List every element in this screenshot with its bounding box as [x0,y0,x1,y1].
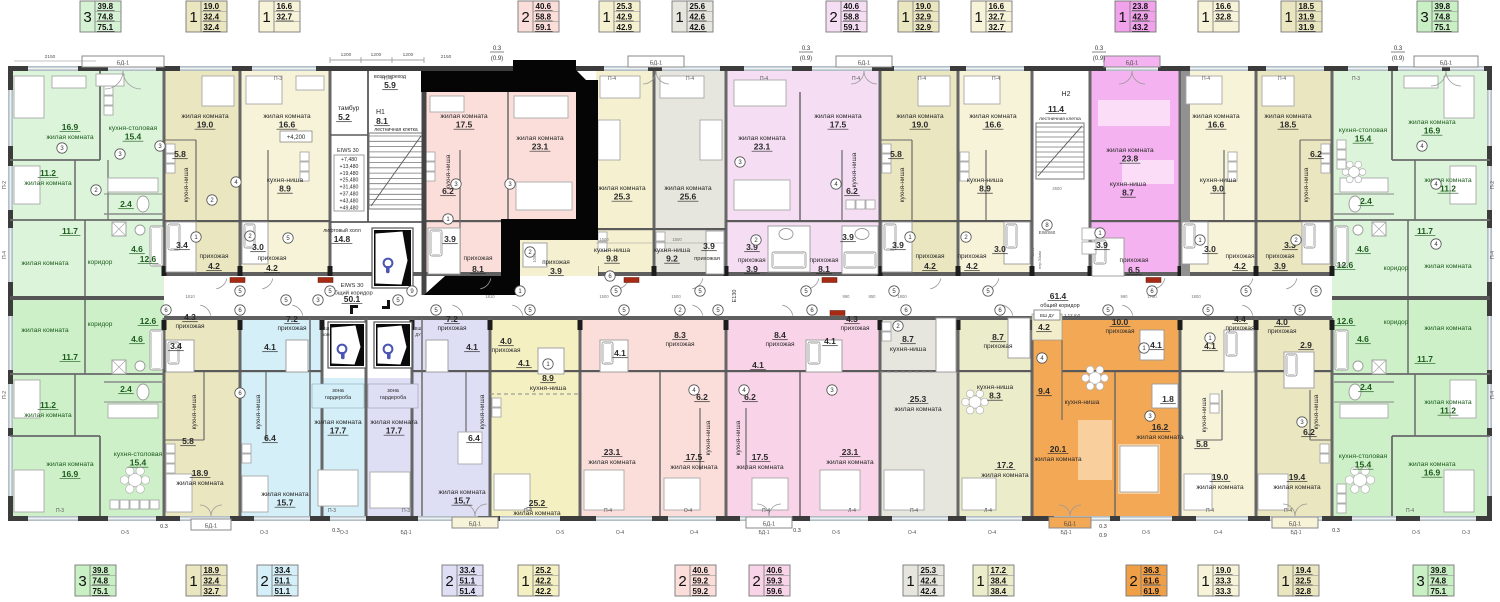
svg-text:15.4: 15.4 [125,132,142,142]
svg-text:П-4: П-4 [1490,251,1496,259]
svg-text:лифтовый холл: лифтовый холл [323,227,360,234]
svg-text:общий коридор: общий коридор [1040,302,1079,309]
svg-text:8.1: 8.1 [472,264,484,274]
svg-text:42.9: 42.9 [1133,13,1149,22]
svg-text:32.8: 32.8 [1216,13,1232,22]
svg-text:прихожая: прихожая [176,323,205,330]
svg-text:25.2: 25.2 [536,566,552,575]
svg-text:40.6: 40.6 [693,566,709,575]
svg-text:58.8: 58.8 [844,13,860,22]
svg-text:17.5: 17.5 [456,120,473,130]
svg-text:11.7: 11.7 [1417,354,1433,364]
svg-text:6.4: 6.4 [264,433,276,443]
svg-text:EIWS60: EIWS60 [1039,230,1056,235]
svg-text:11.7: 11.7 [62,226,78,236]
svg-text:П-4: П-4 [1490,391,1496,399]
svg-text:БД-1: БД-1 [1064,522,1076,528]
svg-text:П-4: П-4 [604,508,612,514]
svg-text:+49,480: +49,480 [340,205,359,211]
svg-text:1: 1 [901,9,909,26]
svg-text:2: 2 [1129,573,1137,590]
svg-text:О-5: О-5 [1142,530,1151,536]
svg-text:10.0: 10.0 [1112,317,1129,327]
svg-text:1: 1 [1118,9,1126,26]
svg-text:33.3: 33.3 [1216,577,1232,586]
svg-text:3: 3 [83,9,91,26]
svg-text:прихожая: прихожая [1226,325,1255,332]
svg-text:4.0: 4.0 [1276,317,1288,327]
svg-text:18.9: 18.9 [204,566,220,575]
svg-text:П-4: П-4 [1278,76,1286,82]
svg-text:59.3: 59.3 [767,577,783,586]
svg-text:кухня-ниша: кухня-ниша [1303,167,1310,202]
svg-text:23.1: 23.1 [754,142,771,152]
svg-text:жилая комната: жилая комната [1196,484,1244,491]
svg-text:EIWS 30: EIWS 30 [337,148,359,154]
svg-text:0.3: 0.3 [1095,46,1104,52]
svg-text:2: 2 [829,9,837,26]
svg-text:39.8: 39.8 [98,2,114,11]
svg-text:16.6: 16.6 [277,2,293,11]
svg-text:74.8: 74.8 [1435,13,1451,22]
svg-text:прихожая: прихожая [492,347,521,354]
svg-text:19.0: 19.0 [1212,472,1229,482]
svg-text:7.2: 7.2 [446,314,458,324]
svg-text:прихожая: прихожая [694,256,720,262]
svg-text:3.9: 3.9 [1096,240,1108,250]
svg-text:П-3: П-3 [1352,76,1360,82]
svg-text:38.4: 38.4 [991,587,1007,596]
svg-text:3.0: 3.0 [1204,244,1216,254]
svg-text:8.1: 8.1 [818,264,830,274]
svg-text:жилая комната: жилая комната [1034,456,1082,463]
svg-text:3.9: 3.9 [703,241,715,251]
svg-text:14.8: 14.8 [334,234,351,244]
svg-text:П-4: П-4 [762,508,770,514]
svg-text:1800: 1800 [897,294,907,299]
svg-text:1: 1 [262,9,270,26]
svg-text:жилая комната: жилая комната [670,464,718,471]
svg-text:П-4: П-4 [384,76,392,82]
svg-text:1: 1 [1284,9,1292,26]
svg-text:17.5: 17.5 [752,452,769,462]
svg-text:прихожая: прихожая [438,325,467,332]
svg-text:6.2: 6.2 [846,186,858,196]
svg-text:О-5: О-5 [832,530,841,536]
svg-text:0.3: 0.3 [802,46,811,52]
svg-text:4.6: 4.6 [1357,244,1369,254]
svg-text:51.1: 51.1 [460,577,476,586]
svg-text:жилая комната: жилая комната [736,464,784,471]
svg-text:32.7: 32.7 [989,23,1005,32]
svg-text:кухня-ниша: кухня-ниша [1201,397,1208,432]
svg-text:17.5: 17.5 [830,120,847,130]
svg-text:1: 1 [189,9,197,26]
svg-text:16.2: 16.2 [1152,422,1169,432]
svg-text:П-2: П-2 [2,391,8,399]
svg-text:+43,480: +43,480 [340,198,359,204]
svg-text:+37,480: +37,480 [340,192,359,198]
svg-text:850: 850 [869,294,877,299]
svg-text:0.3: 0.3 [493,46,502,52]
svg-text:75.1: 75.1 [98,23,114,32]
svg-text:4.1: 4.1 [466,342,478,352]
svg-text:15.4: 15.4 [1355,134,1372,144]
svg-text:11.7: 11.7 [62,352,78,362]
svg-text:7.2: 7.2 [286,314,298,324]
svg-text:1800: 1800 [1191,294,1201,299]
svg-text:1500: 1500 [1030,247,1035,257]
svg-text:25.3: 25.3 [910,394,927,404]
svg-text:4.2: 4.2 [924,261,936,271]
svg-text:ВШ: ВШ [323,326,330,331]
svg-text:4.1: 4.1 [1150,340,1162,350]
svg-text:9.2: 9.2 [666,254,678,264]
svg-text:990: 990 [843,294,851,299]
svg-text:1200: 1200 [371,52,382,58]
svg-text:кухня-ниша: кухня-ниша [899,167,906,202]
svg-text:11.2: 11.2 [40,168,56,178]
svg-text:+31,480: +31,480 [340,185,359,191]
svg-text:6.5: 6.5 [1128,265,1140,275]
svg-text:39.8: 39.8 [1435,2,1451,11]
svg-text:32.7: 32.7 [204,587,220,596]
svg-text:1: 1 [189,573,197,590]
svg-text:0.3: 0.3 [160,524,168,530]
svg-text:БД-1: БД-1 [469,522,481,528]
svg-text:9.4: 9.4 [1038,386,1050,396]
svg-text:кухня-ниша: кухня-ниша [530,385,567,392]
svg-text:1: 1 [974,9,982,26]
svg-text:61.9: 61.9 [1144,587,1160,596]
svg-text:17.7: 17.7 [330,426,347,436]
svg-text:1: 1 [602,9,610,26]
svg-text:1: 1 [1201,9,1209,26]
svg-text:2: 2 [521,9,529,26]
svg-text:74.8: 74.8 [93,577,109,586]
svg-text:23.8: 23.8 [1133,2,1149,11]
svg-text:жилая комната: жилая комната [1136,434,1184,441]
svg-text:ВШ: ВШ [415,326,422,331]
svg-text:33.3: 33.3 [1216,587,1232,596]
svg-text:2.4: 2.4 [1360,382,1372,392]
svg-text:кухня-ниша: кухня-ниша [1313,394,1320,429]
svg-text:19.0: 19.0 [1216,566,1232,575]
svg-text:9.8: 9.8 [606,254,618,264]
svg-text:25.6: 25.6 [690,2,706,11]
svg-text:59.1: 59.1 [536,23,552,32]
svg-text:жилая комната: жилая комната [1273,484,1321,491]
svg-text:П-3: П-3 [328,508,336,514]
svg-text:42.6: 42.6 [690,13,706,22]
svg-text:О-4: О-4 [908,530,917,536]
svg-text:4.2: 4.2 [266,263,278,273]
svg-text:жилая комната: жилая комната [24,180,72,187]
svg-text:жилая комната: жилая комната [21,260,69,267]
svg-text:42.2: 42.2 [536,587,552,596]
svg-text:23.1: 23.1 [842,447,859,457]
svg-text:23.1: 23.1 [532,142,549,152]
svg-text:+4,200: +4,200 [287,135,306,141]
svg-text:1750: 1750 [1147,294,1157,299]
svg-text:11.7: 11.7 [1417,226,1433,236]
svg-text:23.1: 23.1 [604,447,621,457]
svg-text:15.4: 15.4 [1355,460,1372,470]
svg-text:жилая комната: жилая комната [513,510,561,517]
svg-text:1200: 1200 [403,52,414,58]
svg-text:О-4: О-4 [1214,530,1223,536]
svg-text:32.4: 32.4 [204,23,220,32]
svg-text:прихожая: прихожая [738,257,766,264]
svg-text:П-4: П-4 [2,251,8,259]
svg-text:5.8: 5.8 [1196,439,1208,449]
svg-text:2150: 2150 [45,54,56,60]
svg-text:О-4: О-4 [988,530,997,536]
svg-text:+13,480: +13,480 [340,164,359,170]
svg-text:16.9: 16.9 [62,469,79,479]
svg-text:51.4: 51.4 [460,587,476,596]
svg-text:23.8: 23.8 [1122,154,1139,164]
svg-text:19.4: 19.4 [1289,472,1306,482]
svg-text:25.2: 25.2 [529,498,546,508]
svg-text:32.4: 32.4 [204,13,220,22]
svg-text:8.3: 8.3 [989,391,1001,401]
svg-text:4.2: 4.2 [1234,261,1246,271]
svg-text:2: 2 [752,573,760,590]
svg-text:16.9: 16.9 [1424,126,1441,136]
svg-text:П-2: П-2 [1490,181,1496,189]
svg-text:8.7: 8.7 [992,332,1004,342]
svg-text:42.9: 42.9 [617,13,633,22]
svg-text:жилая комната: жилая комната [176,480,224,487]
svg-text:32.4: 32.4 [204,577,220,586]
svg-text:П-4: П-4 [608,76,616,82]
svg-text:4.1: 4.1 [824,336,836,346]
svg-text:П-4: П-4 [1202,76,1210,82]
svg-text:2150: 2150 [441,54,452,60]
svg-text:жилая комната: жилая комната [21,327,69,334]
svg-text:58.8: 58.8 [536,13,552,22]
svg-text:25.6: 25.6 [680,192,697,202]
svg-text:74.8: 74.8 [1431,577,1447,586]
svg-text:1500: 1500 [599,237,609,242]
svg-text:51.1: 51.1 [275,577,291,586]
svg-text:прихожая: прихожая [810,257,839,264]
svg-text:ВШ ДУ: ВШ ДУ [1040,313,1054,318]
svg-text:51.1: 51.1 [275,587,291,596]
svg-text:8.4: 8.4 [774,330,786,340]
svg-text:БД-1: БД-1 [1290,530,1301,536]
svg-text:БД-1: БД-1 [117,61,129,67]
svg-text:коридор: коридор [1384,319,1409,326]
svg-text:1: 1 [1201,573,1209,590]
svg-text:1.12 m2: 1.12 m2 [1064,313,1081,318]
svg-text:П-3: П-3 [402,508,410,514]
svg-text:EIWS 30: EIWS 30 [341,283,364,289]
svg-text:6.2: 6.2 [1310,149,1322,159]
svg-text:лестничная клетка: лестничная клетка [374,127,418,133]
svg-text:2: 2 [678,573,686,590]
svg-text:3.0: 3.0 [252,242,264,252]
svg-text:39.8: 39.8 [93,566,109,575]
svg-text:0.3: 0.3 [1099,524,1107,530]
svg-text:прихожая: прихожая [278,325,307,332]
svg-text:+25,480: +25,480 [340,178,359,184]
svg-text:3: 3 [1416,573,1424,590]
svg-text:36.3: 36.3 [1144,566,1160,575]
svg-text:15.7: 15.7 [277,498,294,508]
svg-text:16.6: 16.6 [279,120,296,130]
svg-text:П-4: П-4 [1206,508,1214,514]
svg-text:4.6: 4.6 [131,334,143,344]
svg-text:11.2: 11.2 [1440,184,1456,194]
svg-text:4.2: 4.2 [966,261,978,271]
svg-text:75.1: 75.1 [1431,587,1447,596]
svg-text:16.6: 16.6 [985,120,1002,130]
svg-text:H1: H1 [376,109,385,116]
svg-text:8.7: 8.7 [902,334,914,344]
svg-text:1: 1 [906,573,914,590]
svg-text:П-3: П-3 [274,76,282,82]
svg-text:кухня-ниша: кухня-ниша [890,346,927,353]
svg-text:8.9: 8.9 [979,184,991,194]
svg-text:БД-1: БД-1 [400,530,411,536]
svg-text:П-4: П-4 [910,508,918,514]
svg-text:кухня-ниша: кухня-ниша [255,394,262,429]
svg-text:42.6: 42.6 [690,23,706,32]
svg-text:4.1: 4.1 [614,348,626,358]
svg-text:40.6: 40.6 [767,566,783,575]
svg-text:3.4: 3.4 [170,341,182,351]
svg-text:1200: 1200 [341,52,352,58]
svg-text:зона: зона [332,388,345,394]
svg-text:11.4: 11.4 [1048,104,1064,114]
svg-text:19.4: 19.4 [1296,566,1312,575]
svg-text:БД-1: БД-1 [1289,522,1301,528]
svg-text:жилая комната: жилая комната [981,472,1029,479]
svg-text:3.9: 3.9 [1274,261,1286,271]
svg-text:33.4: 33.4 [275,566,291,575]
svg-text:П-4: П-4 [524,508,532,514]
svg-text:12.6: 12.6 [1337,260,1354,270]
svg-text:прихожая: прихожая [1266,253,1295,260]
svg-text:О-5: О-5 [1412,530,1421,536]
svg-text:БД-1: БД-1 [1440,61,1452,67]
svg-text:жилая комната: жилая комната [24,412,72,419]
svg-text:25.3: 25.3 [614,192,631,202]
svg-text:3.9: 3.9 [746,264,758,274]
svg-text:3.9: 3.9 [892,240,904,250]
svg-text:1810: 1810 [485,294,495,299]
svg-text:1: 1 [675,9,683,26]
svg-text:12.6: 12.6 [140,254,157,264]
svg-text:12.6: 12.6 [1337,316,1354,326]
svg-text:12.6: 12.6 [140,316,157,326]
svg-text:гардероба: гардероба [325,395,352,401]
svg-text:16.6: 16.6 [1208,120,1225,130]
svg-text:2.4: 2.4 [1360,196,1372,206]
svg-text:4.1: 4.1 [518,358,530,368]
svg-text:5.8: 5.8 [890,149,902,159]
svg-text:прихожая: прихожая [464,255,493,262]
svg-text:6.2: 6.2 [1303,427,1315,437]
svg-text:3.9: 3.9 [842,232,854,242]
svg-text:прихожая: прихожая [1268,328,1297,335]
svg-text:ком: ком [322,332,329,337]
svg-text:кухня-ниша: кухня-ниша [705,420,712,455]
svg-text:8.3: 8.3 [674,330,686,340]
svg-text:74.8: 74.8 [98,13,114,22]
svg-text:32.9: 32.9 [916,13,932,22]
svg-text:кухня-ниша: кухня-ниша [183,167,190,202]
svg-text:4.0: 4.0 [500,336,512,346]
svg-text:прихожая: прихожая [916,253,945,260]
svg-text:19.0: 19.0 [912,120,929,130]
svg-text:БД-1: БД-1 [1126,61,1138,67]
svg-text:+7,480: +7,480 [341,157,357,163]
svg-text:лестничная клетка: лестничная клетка [1039,117,1081,122]
svg-text:1: 1 [976,573,984,590]
svg-text:16.6: 16.6 [1216,2,1232,11]
svg-text:прихожая: прихожая [258,255,287,262]
svg-text:прихожая: прихожая [666,341,695,348]
svg-text:БД-1: БД-1 [205,524,217,530]
svg-text:О-4: О-4 [616,530,625,536]
svg-text:25.3: 25.3 [921,566,937,575]
svg-text:40.6: 40.6 [844,2,860,11]
svg-text:8.7: 8.7 [1122,188,1134,198]
svg-text:20.1: 20.1 [1050,444,1067,454]
svg-text:43.2: 43.2 [1133,23,1149,32]
svg-text:прихожая: прихожая [200,253,229,260]
svg-text:П-2: П-2 [2,181,8,189]
svg-text:2.4: 2.4 [120,199,132,209]
svg-text:П-4: П-4 [1406,508,1414,514]
svg-text:2: 2 [445,573,453,590]
svg-text:жилая комната: жилая комната [1424,325,1472,332]
svg-text:О-3: О-3 [260,530,269,536]
svg-text:коридор: коридор [1384,265,1409,272]
svg-text:16.9: 16.9 [62,122,79,132]
svg-text:16.9: 16.9 [1424,468,1441,478]
svg-text:19.0: 19.0 [204,2,220,11]
svg-text:жилая комната: жилая комната [46,134,94,141]
svg-text:0.3: 0.3 [793,528,801,534]
svg-text:17.5: 17.5 [686,452,703,462]
svg-text:4.3: 4.3 [184,312,196,322]
svg-text:(0.9): (0.9) [800,56,812,62]
svg-text:гардероба: гардероба [380,395,407,401]
svg-text:32.7: 32.7 [989,13,1005,22]
svg-text:+19,480: +19,480 [340,171,359,177]
svg-text:кухня-ниша: кухня-ниша [1065,399,1100,406]
svg-text:40.6: 40.6 [536,2,552,11]
svg-text:75.1: 75.1 [1435,23,1451,32]
svg-text:3: 3 [78,573,86,590]
svg-text:коридор: коридор [88,259,113,266]
svg-text:пер.50мм: пер.50мм [1037,251,1042,269]
svg-text:17.7: 17.7 [386,426,403,436]
svg-text:1500: 1500 [599,294,609,299]
svg-text:18.9: 18.9 [192,468,209,478]
svg-text:П-4: П-4 [1284,508,1292,514]
svg-text:1500: 1500 [671,294,681,299]
svg-text:коридор: коридор [88,321,113,328]
svg-text:0.3: 0.3 [1332,528,1340,534]
svg-text:3.9: 3.9 [444,234,456,244]
svg-text:Л-4: Л-4 [848,508,856,514]
svg-text:4.2: 4.2 [1038,322,1050,332]
